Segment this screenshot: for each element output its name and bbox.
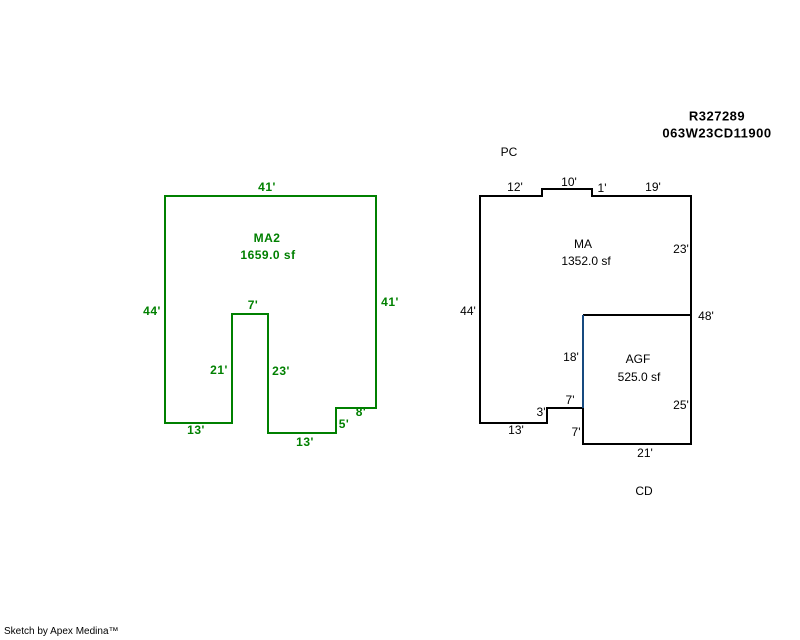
pc-label: PC	[501, 146, 518, 158]
ma2-dim-top: 41'	[258, 181, 276, 193]
ma2-dim-step-width: 8'	[356, 406, 367, 418]
ma-dim-top-right: 19'	[645, 181, 661, 193]
ma-dim-bump-step: 1'	[598, 182, 607, 194]
ma2-area: 1659.0 sf	[240, 249, 295, 261]
agf-dim-bottom: 21'	[637, 447, 653, 459]
ma-area: 1352.0 sf	[561, 255, 610, 267]
ma2-dim-bottom-left: 13'	[187, 424, 205, 436]
ma-dim-left: 44'	[460, 305, 476, 317]
parcel-id: R327289	[689, 110, 745, 123]
cd-label: CD	[635, 485, 652, 497]
map-tax-lot: 063W23CD11900	[662, 127, 771, 140]
ma-outline	[480, 189, 691, 444]
ma-dim-shared-wall: 18'	[563, 351, 579, 363]
ma-dim-bottom-left: 13'	[508, 424, 524, 436]
agf-name: AGF	[626, 353, 651, 365]
ma2-name: MA2	[254, 232, 281, 244]
sketch-page: R327289 063W23CD11900 41' MA2 1659.0 sf …	[0, 0, 800, 640]
ma-dim-right-upper: 23'	[673, 243, 689, 255]
ma2-dim-right: 41'	[381, 296, 399, 308]
agf-area: 525.0 sf	[618, 371, 661, 383]
ma-dim-top-left: 12'	[507, 181, 523, 193]
ma2-dim-step-height: 5'	[339, 418, 350, 430]
ma-dim-notch-side: 7'	[572, 426, 581, 438]
ma-dim-notch-step: 3'	[537, 406, 546, 418]
ma-name: MA	[574, 238, 592, 250]
ma2-dim-notch-left: 21'	[210, 364, 228, 376]
sketch-drawing	[0, 0, 800, 640]
ma2-dim-left: 44'	[143, 305, 161, 317]
ma-dim-notch-top: 7'	[566, 394, 575, 406]
sketch-credit: Sketch by Apex Medina™	[4, 626, 119, 637]
ma-dim-bump-top: 10'	[561, 176, 577, 188]
ma2-dim-bottom-mid: 13'	[296, 436, 314, 448]
ma2-dim-notch-right: 23'	[272, 365, 290, 377]
agf-dim-right: 25'	[673, 399, 689, 411]
ma2-dim-notch-top: 7'	[248, 299, 259, 311]
ma-dim-right-total: 48'	[698, 310, 714, 322]
